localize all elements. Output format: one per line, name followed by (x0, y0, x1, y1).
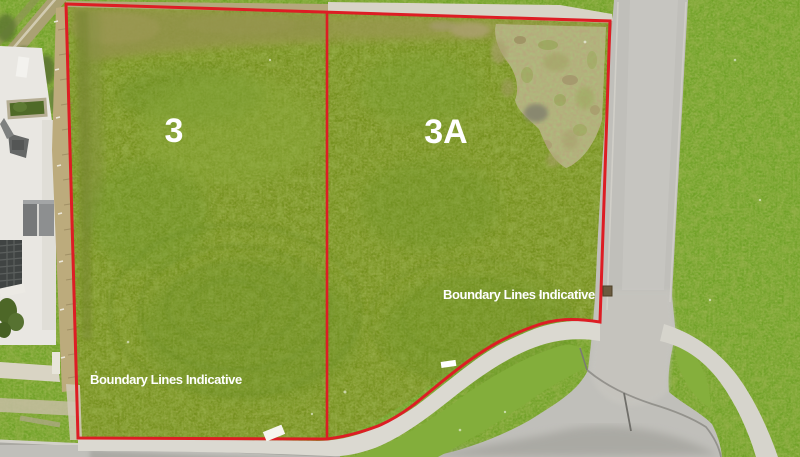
svg-text:3A: 3A (424, 113, 467, 151)
svg-text:Boundary Lines Indicative: Boundary Lines Indicative (443, 287, 595, 302)
svg-text:3: 3 (165, 112, 184, 150)
svg-text:Boundary Lines Indicative: Boundary Lines Indicative (90, 372, 242, 387)
